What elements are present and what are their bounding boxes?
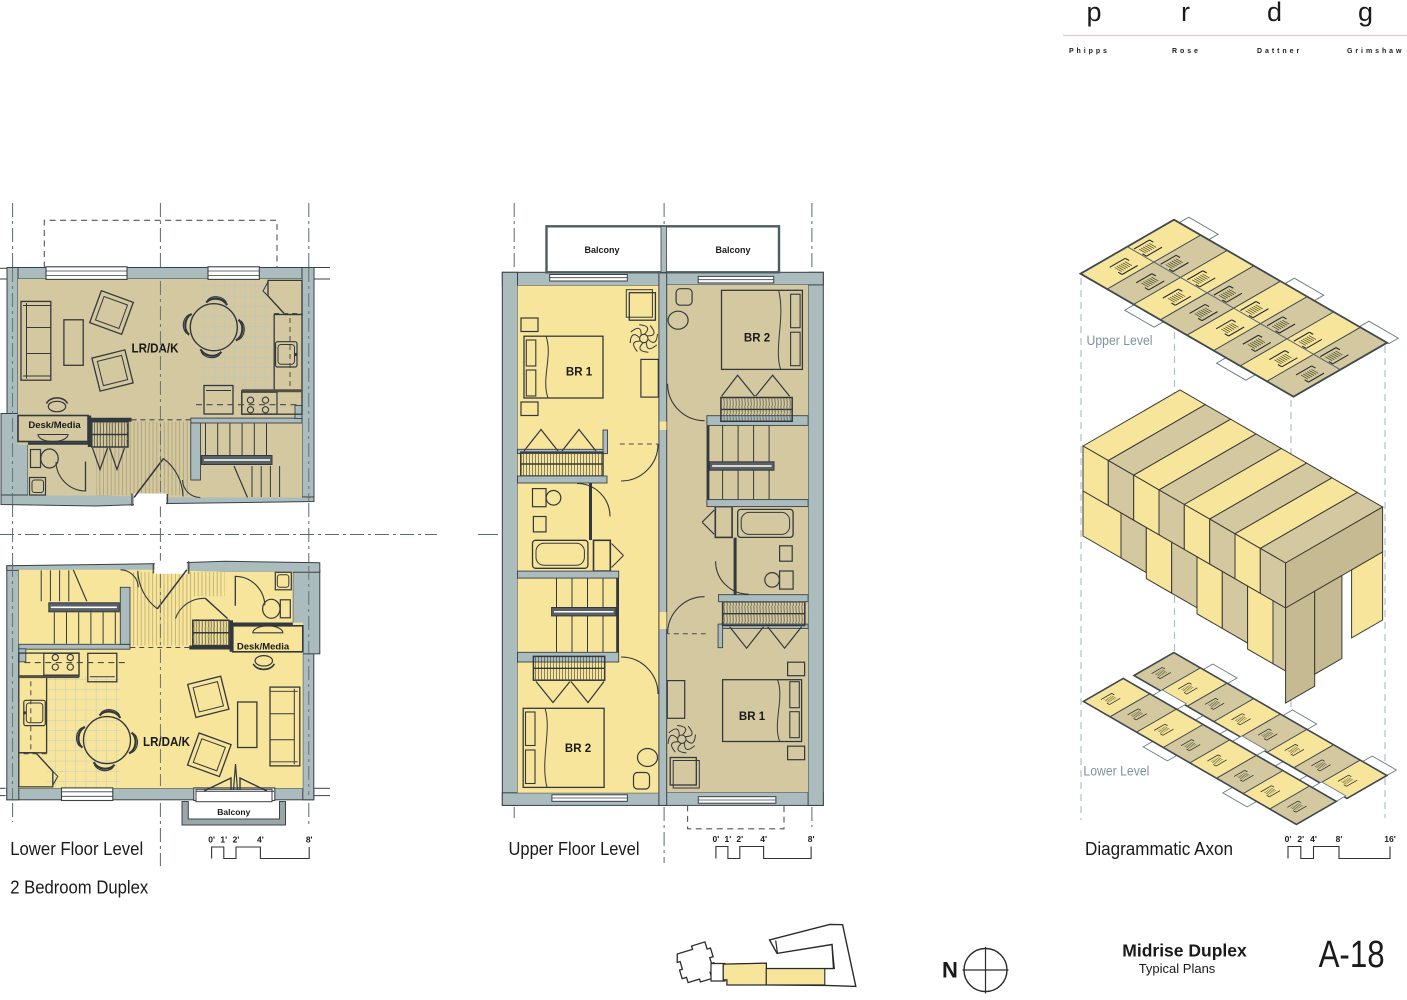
svg-text:Balcony: Balcony — [217, 807, 250, 817]
svg-text:A-18: A-18 — [1319, 934, 1385, 976]
svg-text:BR 1: BR 1 — [566, 367, 593, 379]
svg-text:Upper Floor Level: Upper Floor Level — [509, 839, 640, 859]
svg-text:1': 1' — [725, 834, 732, 844]
svg-text:8': 8' — [1336, 834, 1343, 844]
svg-text:0': 0' — [713, 834, 720, 844]
svg-text:Balcony: Balcony — [584, 245, 619, 255]
svg-text:g: g — [1358, 0, 1373, 27]
svg-text:16': 16' — [1384, 834, 1395, 844]
svg-text:Typical Plans: Typical Plans — [1139, 961, 1216, 976]
svg-text:4': 4' — [1310, 834, 1317, 844]
svg-text:8': 8' — [808, 834, 815, 844]
svg-text:BR 2: BR 2 — [565, 743, 591, 755]
svg-text:2': 2' — [233, 835, 240, 845]
svg-text:Lower Level: Lower Level — [1083, 763, 1149, 779]
svg-text:Diagrammatic Axon: Diagrammatic Axon — [1085, 839, 1233, 859]
svg-text:Desk/Media: Desk/Media — [28, 420, 81, 431]
svg-text:BR 1: BR 1 — [739, 711, 766, 723]
svg-text:4': 4' — [760, 834, 767, 844]
svg-text:0': 0' — [208, 835, 215, 845]
svg-text:Lower Floor Level: Lower Floor Level — [10, 839, 143, 859]
svg-text:p: p — [1086, 0, 1101, 27]
svg-text:N: N — [942, 958, 958, 983]
svg-text:4': 4' — [257, 835, 264, 845]
svg-text:Midrise Duplex: Midrise Duplex — [1122, 941, 1247, 961]
svg-text:G r i m s h a w: G r i m s h a w — [1347, 48, 1402, 55]
svg-text:LR/DA/K: LR/DA/K — [132, 342, 179, 356]
svg-text:0': 0' — [1285, 834, 1292, 844]
svg-text:2': 2' — [736, 834, 743, 844]
svg-text:R o s e: R o s e — [1172, 48, 1198, 55]
svg-text:r: r — [1181, 0, 1190, 27]
svg-text:Upper Level: Upper Level — [1087, 332, 1153, 348]
svg-text:1': 1' — [220, 835, 227, 845]
svg-text:LR/DA/K: LR/DA/K — [143, 735, 190, 749]
svg-text:d: d — [1267, 0, 1282, 27]
svg-text:8': 8' — [306, 835, 313, 845]
svg-text:2 Bedroom Duplex: 2 Bedroom Duplex — [10, 878, 148, 898]
svg-text:Desk/Media: Desk/Media — [237, 642, 290, 653]
svg-text:2': 2' — [1297, 834, 1304, 844]
svg-text:Balcony: Balcony — [715, 245, 750, 255]
svg-text:D a t t n e r: D a t t n e r — [1257, 48, 1300, 55]
svg-text:BR 2: BR 2 — [744, 333, 770, 345]
svg-text:P h i p p s: P h i p p s — [1069, 48, 1107, 55]
